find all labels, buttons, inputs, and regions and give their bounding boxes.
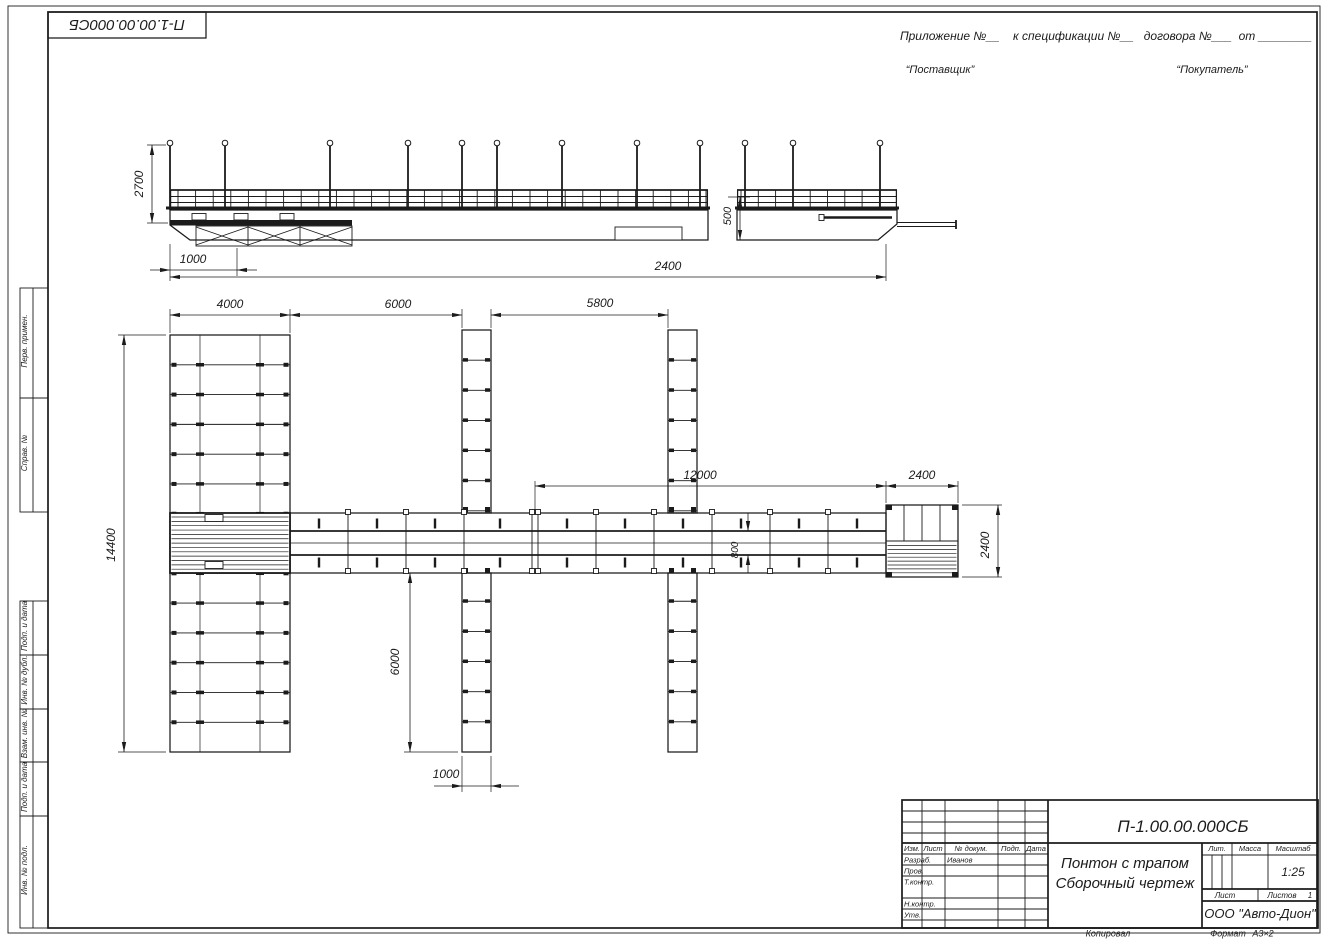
col-podp: Подп. <box>1001 844 1021 853</box>
dim-1000-width: 1000 <box>433 767 460 781</box>
end-platform-plan <box>886 505 958 577</box>
row-nkontr-label: Н.контр. <box>904 900 936 909</box>
dim-5800: 5800 <box>587 296 614 310</box>
deck-cleat <box>192 214 206 221</box>
scissor-support <box>196 226 352 246</box>
sheet-label: Лист <box>1214 891 1236 900</box>
row-razrab-value: Иванов <box>947 856 973 865</box>
scale-value: 1:25 <box>1281 865 1305 879</box>
col-list: Лист <box>922 844 942 853</box>
sheets-label: Листов <box>1266 891 1296 900</box>
margin-label-0: Перв. примен. <box>20 314 29 367</box>
side-view-dimensions: 2700 1000 500 2400 <box>132 145 886 281</box>
pontoon-hull-right <box>737 210 897 240</box>
shore-gangplank <box>897 220 956 229</box>
row-prov-label: Пров. <box>904 867 924 876</box>
sheet-frame <box>8 6 1320 933</box>
plank-support <box>819 215 824 221</box>
col-data: Дата <box>1025 844 1046 853</box>
company-name: ООО "Авто-Дион" <box>1204 906 1317 921</box>
row-utv-label: Утв. <box>903 911 921 920</box>
contract-header: Приложение №__ к спецификации №__ догово… <box>900 29 1312 76</box>
margin-label-5: Подп. и дата <box>20 761 29 812</box>
dim-2400-side: 2400 <box>654 259 682 273</box>
gangway-plank-side <box>170 220 352 226</box>
gangway-hatch-plan <box>170 513 290 573</box>
side-view: 2700 1000 500 2400 <box>132 140 956 281</box>
margin-label-2: Подп. и дата <box>20 600 29 651</box>
margin-label-4: Взам. инв. № <box>20 708 29 758</box>
dim-2400-length: 2400 <box>908 468 936 482</box>
dim-4000: 4000 <box>217 297 244 311</box>
drawing-title-line2: Сборочный чертеж <box>1056 875 1195 892</box>
contract-line: Приложение №__ к спецификации №__ догово… <box>900 29 1312 43</box>
doc-number: П-1.00.00.000СБ <box>1117 817 1248 836</box>
drawing-sheet: П-1.00.00.000СБ Перв. примен.Справ. №Под… <box>0 0 1328 939</box>
deck-cleat <box>234 214 248 221</box>
deck-cleat <box>280 214 294 221</box>
plan-view: 4000 6000 5800 12000 2400 14400 6000 <box>104 296 1002 792</box>
format-value: А3×2 <box>1251 929 1273 939</box>
margin-label-3: Инв. № дубл. <box>20 655 29 704</box>
dim-6000-bay: 6000 <box>385 297 412 311</box>
copied-label: Копировал <box>1086 929 1131 939</box>
dim-2700: 2700 <box>132 170 146 198</box>
dim-14400: 14400 <box>104 528 118 562</box>
dim-6000-finger: 6000 <box>388 648 402 675</box>
title-block: П-1.00.00.000СБ Понтон с трапом Сборочны… <box>902 800 1318 928</box>
col-izm: Изм. <box>904 844 920 853</box>
row-razrab-label: Разраб. <box>904 856 931 865</box>
dim-800: 800 <box>730 541 741 558</box>
dim-500: 500 <box>722 206 734 225</box>
walkway-plan <box>290 510 886 574</box>
drawing-title-line1: Понтон с трапом <box>1061 855 1189 872</box>
format-label: Формат <box>1210 929 1246 939</box>
scale-label: Масштаб <box>1275 844 1311 853</box>
supplier-label: “Поставщик” <box>906 64 976 76</box>
sheets-value: 1 <box>1308 891 1312 900</box>
margin-label-1: Справ. № <box>20 434 29 471</box>
hull-notch <box>615 227 682 240</box>
buyer-label: “Покупатель” <box>1176 64 1249 76</box>
sheet-footer: Копировал Формат А3×2 <box>1086 929 1274 939</box>
margin-column: Перв. примен.Справ. №Подп. и датаИнв. № … <box>20 288 48 928</box>
margin-label-6: Инв. № подл. <box>20 845 29 895</box>
col-docnum: № докум. <box>954 844 987 853</box>
finger-pontoons-plan <box>462 330 697 752</box>
dim-12000: 12000 <box>683 468 717 482</box>
mass-label: Масса <box>1239 844 1261 853</box>
dim-2400-width: 2400 <box>978 531 992 559</box>
railing <box>170 190 897 203</box>
row-tkontr-label: Т.контр. <box>904 878 934 887</box>
lit-label: Лит. <box>1207 844 1226 853</box>
dim-1000-side: 1000 <box>180 252 207 266</box>
corner-stamp-text: П-1.00.00.000СБ <box>69 16 185 33</box>
